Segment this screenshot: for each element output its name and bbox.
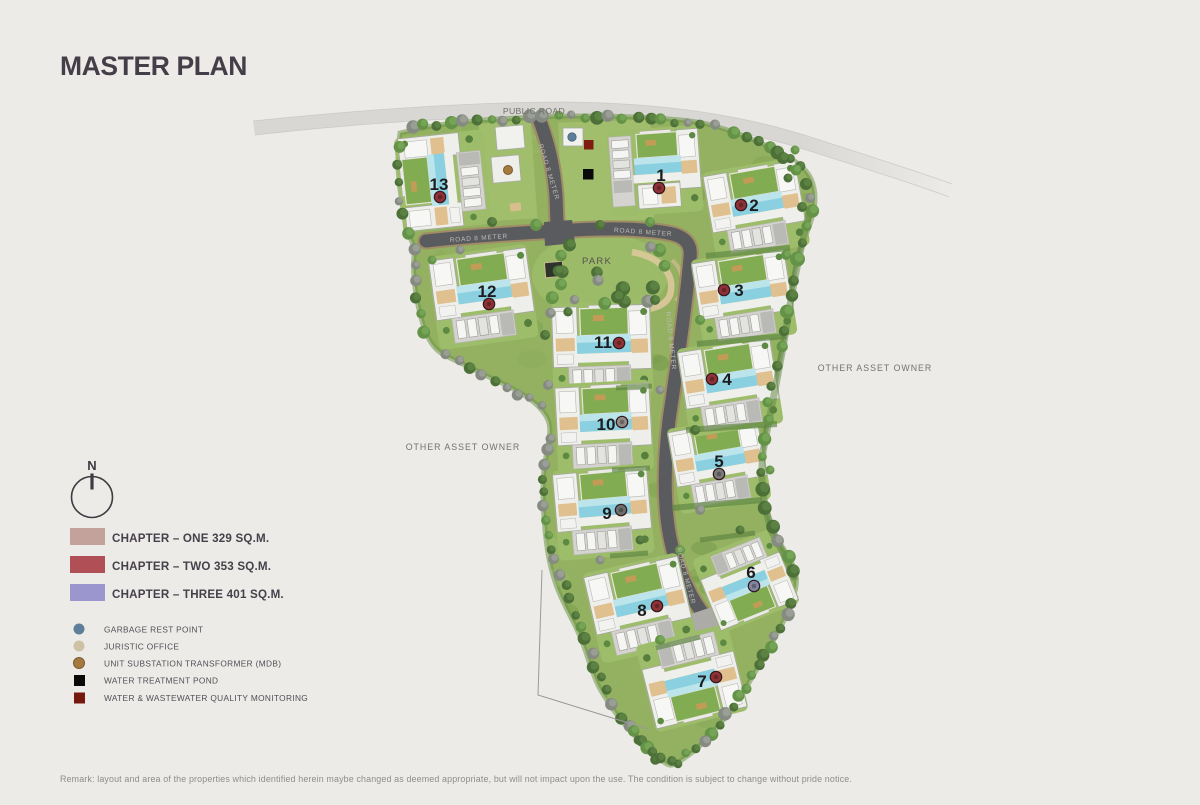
svg-text:4: 4 [722,370,732,389]
svg-text:Remark: layout and area of the: Remark: layout and area of the propertie… [60,774,852,784]
svg-text:JURISTIC OFFICE: JURISTIC OFFICE [104,642,179,652]
svg-text:WATER TREATMENT POND: WATER TREATMENT POND [104,676,218,686]
svg-text:PUBLIC ROAD: PUBLIC ROAD [503,106,565,116]
svg-text:11: 11 [594,333,612,352]
svg-text:8: 8 [637,601,646,620]
svg-text:GARBAGE REST POINT: GARBAGE REST POINT [104,625,203,635]
svg-text:UNIT SUBSTATION TRANSFORMER (M: UNIT SUBSTATION TRANSFORMER (MDB) [104,659,281,669]
svg-text:OTHER ASSET OWNER: OTHER ASSET OWNER [818,363,933,373]
svg-text:6: 6 [746,563,755,582]
svg-text:3: 3 [734,281,743,300]
svg-text:PARK: PARK [582,256,612,267]
svg-text:CHAPTER – ONE 329 SQ.M.: CHAPTER – ONE 329 SQ.M. [112,532,269,545]
svg-text:9: 9 [602,504,611,523]
svg-text:CHAPTER – TWO 353 SQ.M.: CHAPTER – TWO 353 SQ.M. [112,560,271,573]
svg-text:7: 7 [697,672,706,691]
svg-text:10: 10 [597,415,616,434]
svg-text:CHAPTER – THREE 401 SQ.M.: CHAPTER – THREE 401 SQ.M. [112,588,284,601]
svg-text:OTHER ASSET OWNER: OTHER ASSET OWNER [406,442,521,452]
svg-text:WATER & WASTEWATER QUALITY MON: WATER & WASTEWATER QUALITY MONITORING [104,693,308,703]
svg-text:N: N [87,458,96,473]
svg-text:2: 2 [749,196,758,215]
svg-text:MASTER PLAN: MASTER PLAN [60,51,247,81]
